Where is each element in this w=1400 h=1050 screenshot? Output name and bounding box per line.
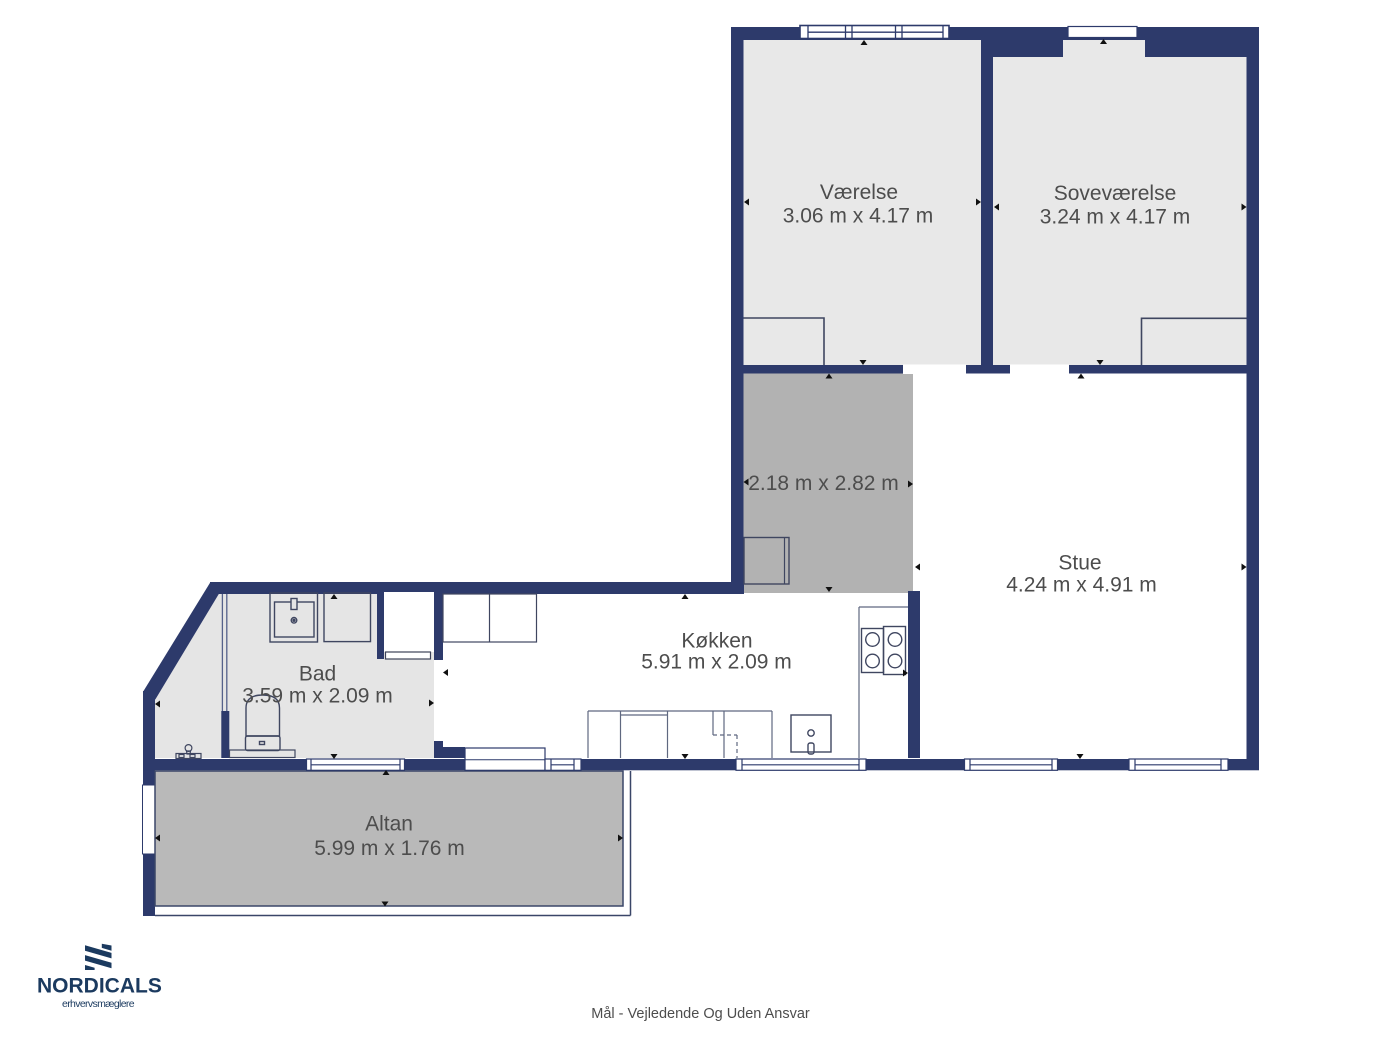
svg-text:3.59 m x 2.09 m: 3.59 m x 2.09 m — [242, 685, 393, 708]
svg-text:4.24 m x 4.91 m: 4.24 m x 4.91 m — [1006, 574, 1157, 597]
svg-text:3.24 m x 4.17 m: 3.24 m x 4.17 m — [1040, 206, 1191, 229]
svg-text:Værelse: Værelse — [820, 181, 898, 204]
svg-text:2.18 m x 2.82 m: 2.18 m x 2.82 m — [748, 472, 899, 495]
svg-text:5.91 m x 2.09 m: 5.91 m x 2.09 m — [641, 651, 792, 674]
svg-text:NORDICALS: NORDICALS — [37, 975, 162, 998]
svg-text:Stue: Stue — [1058, 552, 1101, 575]
svg-text:5.99 m x 1.76 m: 5.99 m x 1.76 m — [314, 837, 465, 860]
svg-text:3.06 m x 4.17 m: 3.06 m x 4.17 m — [783, 205, 934, 228]
svg-text:Mål - Vejledende Og Uden Ansva: Mål - Vejledende Og Uden Ansvar — [591, 1006, 810, 1022]
svg-text:Bad: Bad — [299, 663, 336, 686]
svg-text:erhvervsmæglere: erhvervsmæglere — [62, 998, 135, 1010]
svg-text:Køkken: Køkken — [681, 630, 752, 653]
svg-text:Soveværelse: Soveværelse — [1054, 182, 1177, 205]
svg-text:Altan: Altan — [365, 813, 413, 836]
